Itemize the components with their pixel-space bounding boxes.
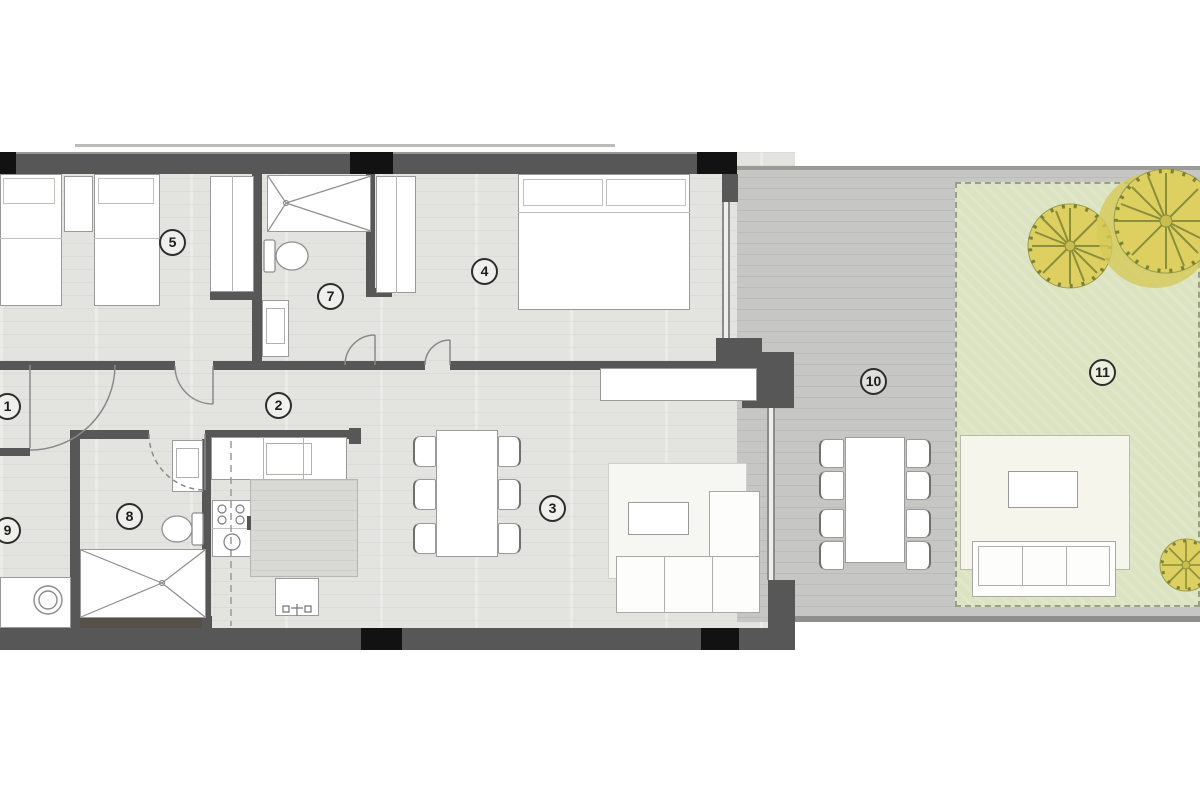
room-label-10: 10 [860, 368, 887, 395]
toilet [264, 240, 308, 272]
tree-icon [1160, 539, 1200, 591]
washing-machine-icon [34, 586, 62, 614]
room-label-7: 7 [317, 283, 344, 310]
faucet-icon [283, 604, 311, 616]
floor-plan: 1 2 3 4 5 7 8 9 10 11 [0, 0, 1200, 800]
room-label-5: 5 [159, 229, 186, 256]
room-label-4: 4 [471, 258, 498, 285]
room-label-2: 2 [265, 392, 292, 419]
plan-symbol-overlay [0, 0, 1200, 800]
room-label-8: 8 [116, 503, 143, 530]
tree-icon [1097, 169, 1200, 288]
door-swing [30, 335, 450, 490]
shower-door-fan [81, 176, 371, 617]
room-label-11: 11 [1089, 359, 1116, 386]
toilet [162, 513, 203, 545]
room-label-3: 3 [539, 495, 566, 522]
